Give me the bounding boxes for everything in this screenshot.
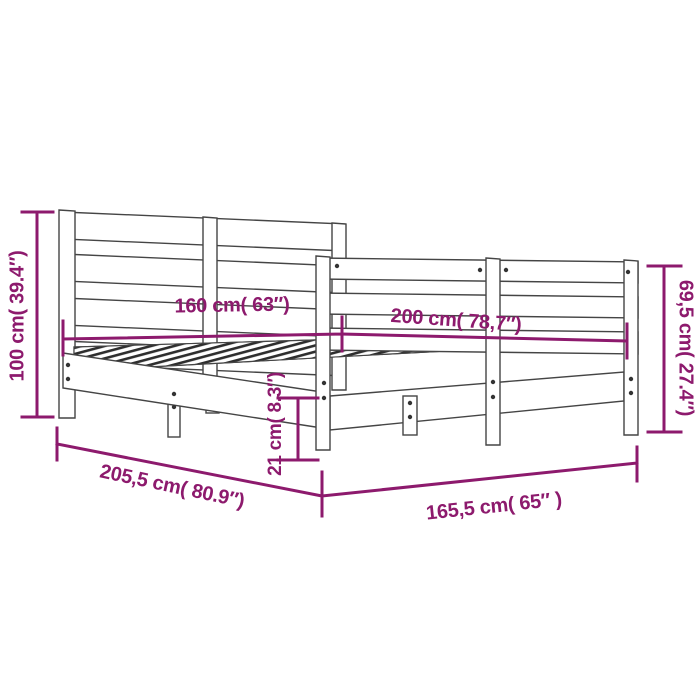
- bed-frame-drawing: [0, 0, 700, 700]
- dim-label-footboard-height: 69,5 cm( 27.4″): [674, 280, 697, 416]
- footboard-post-left: [316, 256, 330, 450]
- dim-label-rail-height: 21 cm( 8.3″): [265, 372, 287, 476]
- dim-label-headboard-height: 100 cm( 39.4″): [7, 250, 30, 381]
- foot-rail: [330, 372, 624, 430]
- dimension-diagram: 100 cm( 39.4″) 160 cm( 63″) 200 cm( 78,7…: [0, 0, 700, 700]
- footboard-post-center: [486, 258, 500, 445]
- dimension-line-frame-width: [322, 447, 637, 496]
- dim-label-mattress-width: 160 cm( 63″): [174, 293, 289, 318]
